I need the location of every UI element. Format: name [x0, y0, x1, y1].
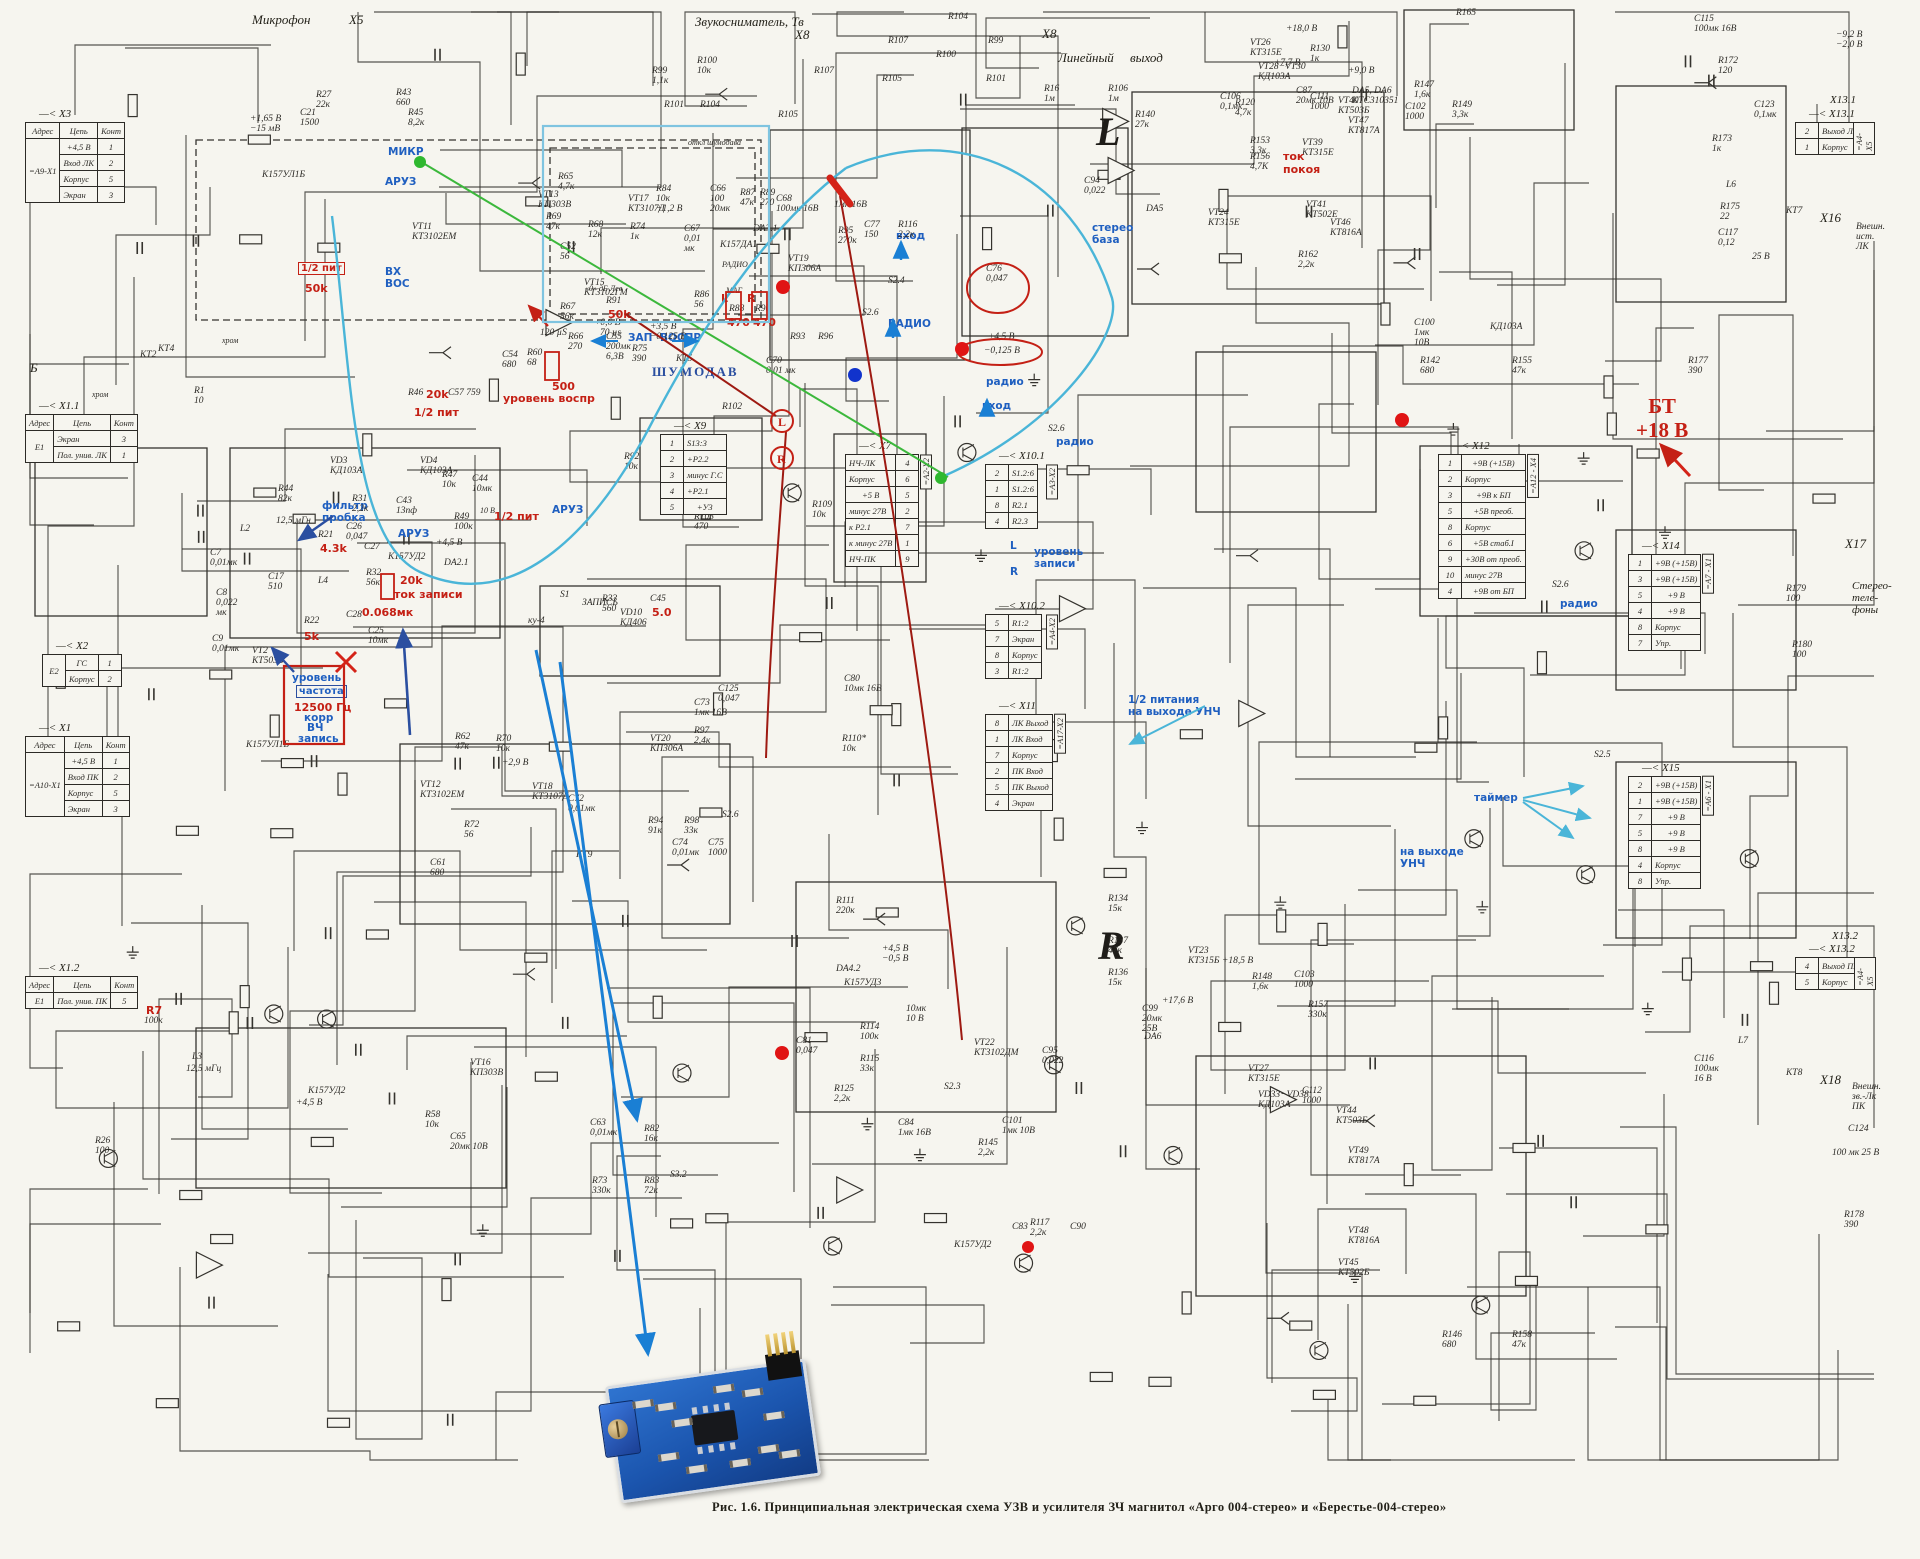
schematic-label: VT16 КП303В [470, 1058, 503, 1078]
schematic-label: +1,65 В −15 мВ [250, 114, 281, 134]
schematic-label: Х8 [1042, 26, 1056, 42]
schematic-label: R145 2,2к [978, 1138, 998, 1158]
schematic-label: К157УД2 [954, 1240, 991, 1250]
schematic-label: 100к [144, 1016, 163, 1026]
schematic-label: МИКР [388, 146, 424, 158]
schematic-label: R146 680 [1442, 1330, 1462, 1350]
schematic-label: R27 22к [316, 90, 331, 110]
schematic-label: выход [1130, 50, 1163, 66]
schematic-label: R117 2,2к [1030, 1218, 1049, 1238]
schematic-label: R94 91к [648, 816, 663, 836]
schematic-label: +9,0 В [1348, 66, 1374, 76]
trimmer-screw [607, 1418, 630, 1441]
schematic-label: 12,5 мГц [186, 1064, 221, 1074]
schematic-label: таймер [1474, 792, 1518, 804]
connector-table-x3: —< Х3АдресЦепьКонт=А9-Х1+4,5 В1Вход ЛК2К… [25, 108, 125, 203]
schematic-label: R69 47к [546, 212, 561, 232]
schematic-label: радио [986, 376, 1024, 388]
schematic-label: VT19 КП306А [788, 254, 821, 274]
schematic-label: С84 1мк 16В [898, 1118, 931, 1138]
connector-table-x12: —< Х121+9В (+15В)2Корпус3+9В к БП5+5В пр… [1438, 440, 1526, 599]
schematic-label: С27 [364, 542, 380, 552]
schematic-label: VT40 КТ503Б [1338, 96, 1369, 116]
schematic-label: R68 12к [588, 220, 603, 240]
schematic-label: R134 15к [1108, 894, 1128, 914]
schematic-label: С57 759 [448, 388, 480, 398]
schematic-label: КД103А [1490, 322, 1522, 332]
schematic-label: R102 [722, 402, 742, 412]
schematic-label: R88 [729, 304, 744, 314]
schematic-label: +4,5 В [436, 538, 462, 548]
schematic-label: С112 1000 [1302, 1086, 1322, 1106]
schematic-label: хром [222, 336, 238, 345]
schematic-label: 0.068мк [362, 606, 413, 619]
schematic-label: VT2 КТ503Б [252, 646, 283, 666]
schematic-label: DA5 [1146, 204, 1163, 214]
schematic-label: Б [30, 360, 38, 376]
schematic-label: R106 1м [1108, 84, 1128, 104]
connector-table-x2: —< Х2Е2ГС1Корпус2 [42, 640, 122, 687]
schematic-label: VT11 КТ3102ЕМ [412, 222, 456, 242]
schematic-label: R180 100 [1792, 640, 1812, 660]
schematic-label: С66 100 20мк [710, 184, 730, 214]
schematic-label: 50k [305, 282, 328, 295]
connector-table-x14: —< Х141+9В (+15В)3+9В (+15В)5+9 В4+9 В8К… [1628, 540, 1701, 651]
soic8-chip [691, 1410, 739, 1446]
schematic-label: С70 0,01 мк [766, 356, 796, 376]
schematic-label: VT28−VT30 КД103А [1258, 62, 1306, 82]
schematic-label: R110* 10к [842, 734, 866, 754]
schematic-label: R107 [888, 36, 908, 46]
schematic-label: РАДИО [888, 318, 931, 330]
schematic-label: 1мк 16В [834, 200, 867, 210]
schematic-label: Х16 [1820, 210, 1841, 226]
schematic-label: уровень воспр [503, 392, 595, 405]
schematic-label: S2.6 [862, 308, 879, 318]
schematic-label: VT22 КТ3102ДМ [974, 1038, 1019, 1058]
schematic-label: С72 0,01мк [568, 794, 595, 814]
schematic-label: вход [982, 400, 1011, 412]
schematic-label: С76 0,047 [986, 264, 1007, 284]
schematic-label: Х5 [349, 12, 363, 28]
schematic-label: К157УЛ1Б [246, 740, 289, 750]
schematic-label: S2.5 [1594, 750, 1611, 760]
schematic-label: R96 [818, 332, 833, 342]
schematic-label: S2.6 [1048, 424, 1065, 434]
schematic-label: R70 10к [496, 734, 511, 754]
schematic-label: DA3.1 [753, 224, 778, 234]
schematic-label: R104 [700, 100, 720, 110]
schematic-label: R162 2,2к [1298, 250, 1318, 270]
schematic-label: С9 0,01мк [212, 634, 239, 654]
connector-table-x11: —< Х118ЛК Выход1ЛК Вход7Корпус2ПК Вход5П… [985, 700, 1053, 811]
schematic-label: R87 47к [740, 188, 755, 208]
schematic-label: VT13 КП303В [538, 190, 571, 210]
schematic-label: R93 [790, 332, 805, 342]
schematic-label: С75 1000 [708, 838, 727, 858]
schematic-label: R130 1к [1310, 44, 1330, 64]
schematic-label: R33 560 [602, 594, 617, 614]
schematic-label: уровень [292, 672, 341, 684]
schematic-label: С77 150 [864, 220, 880, 240]
schematic-label: С123 0,1мк [1754, 100, 1776, 120]
schematic-label: ВХ ВОС [385, 266, 410, 290]
schematic-label: L7 [1738, 1036, 1748, 1046]
schematic-label: R107 [814, 66, 834, 76]
connector-table-x13-1: —< Х13.12Выход ЛК1Корпус=А4-Х5 [1795, 108, 1862, 155]
schematic-label: VT45 КТ502Б [1338, 1258, 1369, 1278]
schematic-label: R177 390 [1688, 356, 1708, 376]
schematic-label: VT24 КТ315Е [1208, 208, 1240, 228]
schematic-label: VT23 КТ315Б [1188, 946, 1219, 966]
schematic-label: К157УЛ1Б [262, 170, 305, 180]
schematic-label: +3,5 В −0,125 В [650, 322, 686, 342]
schematic-label: 10мк 10 В [906, 1004, 926, 1024]
schematic-label: АРУЗ [398, 528, 429, 540]
connector-table-x13-2: —< Х13.24Выход ПК5Корпус=А4-Х5 [1795, 943, 1863, 990]
schematic-label: БТ +18 В [1636, 394, 1688, 442]
schematic-label: Х8 [795, 27, 809, 43]
schematic-label: R83 72к [644, 1176, 659, 1196]
schematic-label: К157ДА1 [720, 240, 757, 250]
schematic-label: С55 200мк 6,3В [606, 332, 631, 362]
schematic-label: R105 [882, 74, 902, 84]
schematic-label: R148 1,6к [1252, 972, 1272, 992]
schematic-label: С8 0,022 мк [216, 588, 237, 618]
schematic-label: R179 100 [1786, 584, 1806, 604]
schematic-label: R [1010, 566, 1018, 578]
schematic-label: С43 13пф [396, 496, 417, 516]
schematic-label: АРУЗ [552, 504, 583, 516]
schematic-label: 120 µS [540, 328, 567, 338]
schematic-label: +4,5 В −0,5 В [882, 944, 908, 964]
schematic-label: «0» дБ Лев [585, 284, 622, 293]
schematic-label: R137 47к [1108, 936, 1128, 956]
schematic-label: VT44 КТ503Б [1336, 1106, 1367, 1126]
header-connector [765, 1350, 802, 1380]
schematic-label: R75 390 [632, 344, 647, 364]
schematic-label: Внешн. ист. ЛК [1856, 222, 1885, 252]
schematic-label: R26 100 [95, 1136, 110, 1156]
schematic-label: С94 0,022 [1084, 176, 1105, 196]
schematic-label: R90 [755, 304, 770, 314]
schematic-label: +4,5 В [296, 1098, 322, 1108]
schematic-label: стерео база [1092, 222, 1133, 246]
schematic-label: 470 [753, 316, 776, 329]
schematic-label: R103 470 [694, 512, 714, 532]
schematic-label: С81 0,047 [796, 1036, 817, 1056]
connector-table-x9: —< Х91S13:32+Р2.23минус Г.С4+Р2.15+У3 [660, 420, 727, 515]
schematic-label: R66 270 [568, 332, 583, 352]
schematic-label: 1/2 пит [414, 406, 459, 419]
schematic-label: К157УД2 [388, 552, 425, 562]
schematic-label: ЗАП [628, 332, 652, 344]
schematic-label: С100 1мк 10В [1414, 318, 1435, 348]
schematic-label: VT26 КТ315Е [1250, 38, 1282, 58]
schematic-label: R74 1к [630, 222, 645, 242]
schematic-label: 20k [400, 574, 423, 587]
schematic-label: С106 0,1мк [1220, 92, 1242, 112]
schematic-label: 25 В [1752, 252, 1770, 262]
schematic-label: L [1010, 540, 1017, 552]
schematic-label: S2.6 [722, 810, 739, 820]
schematic-label: на выходе УНЧ [1400, 846, 1464, 870]
schematic-label: С74 0,01мк [672, 838, 699, 858]
schematic-label: R104 [948, 12, 968, 22]
schematic-label: R82 16к [644, 1124, 659, 1144]
schematic-label: С61 680 [430, 858, 446, 878]
schematic-label: С115 100мк 16В [1694, 14, 1736, 34]
schematic-label: ток покоя [1283, 150, 1320, 176]
schematic-label: +17,6 В [1162, 996, 1193, 1006]
schematic-label: VT27 КТ315Е [1248, 1064, 1280, 1084]
schematic-label: R155 47к [1512, 356, 1532, 376]
schematic-label: Х18 [1820, 1072, 1841, 1088]
schematic-label: R142 680 [1420, 356, 1440, 376]
schematic-label: R175 22 [1720, 202, 1740, 222]
connector-table-x10-2: —< Х10.25R1:27Экран8Корпус3R1:2=А4-Х2 [985, 600, 1045, 679]
schematic-label: R65 4,7к [558, 172, 574, 192]
connector-table-x10-1: —< Х10.12S1.2:61S1.2:68R2.14R2.3=А3-Х2 [985, 450, 1045, 529]
schematic-label: ШУМОДАВ [652, 364, 739, 380]
schematic-label: R73 330к [592, 1176, 611, 1196]
schematic-label: VT46 КТ816А [1330, 218, 1362, 238]
schematic-label: С25 10мк [368, 626, 388, 646]
schematic-label: VT20 КП306А [650, 734, 683, 754]
schematic-label: VD3 КД103А [330, 456, 362, 476]
schematic-label: S1 [560, 590, 570, 600]
schematic-label: L6 [1726, 180, 1736, 190]
schematic-label: R111 220к [836, 896, 855, 916]
schematic-label: R84 10к +1,2 В [656, 184, 682, 214]
schematic-label: С80 10мк 16В [844, 674, 882, 694]
schematic-label: R140 27к [1135, 110, 1155, 130]
schematic-label: КТ4 [158, 344, 174, 354]
schematic-label: С102 1000 [1405, 102, 1426, 122]
schematic-label: С63 0,01мк [590, 1118, 617, 1138]
schematic-label: VT41 КТ502Е [1306, 200, 1338, 220]
schematic-label: КТ7 [1786, 206, 1802, 216]
schematic-label: С17 510 [268, 572, 284, 592]
schematic-label: С83 [1012, 1222, 1028, 1232]
schematic-label: R32 56к [366, 568, 381, 588]
schematic-label: R99 [988, 36, 1003, 46]
schematic-label: КТ5 [676, 354, 692, 364]
schematic-label: R114 100к [860, 1022, 879, 1042]
schematic-label: С65 20мк 10В [450, 1132, 488, 1152]
schematic-label: С90 [1070, 1222, 1086, 1232]
schematic-label: С103 1000 [1294, 970, 1315, 990]
schematic-label: +4,5 В [988, 332, 1014, 342]
schematic-label: Микрофон [252, 12, 310, 28]
schematic-label: КТ9 [576, 850, 592, 860]
schematic-label: С99 20мк 25В [1142, 1004, 1162, 1034]
schematic-label: С111 1000 [1310, 92, 1329, 112]
schematic-label: С26 0,047 [346, 522, 367, 542]
schematic-label: L [1096, 108, 1120, 155]
schematic-label: R178 390 [1844, 1210, 1864, 1230]
schematic-label: −0,125 В [984, 346, 1020, 356]
schematic-label: запись [298, 733, 339, 745]
schematic-label: R22 [304, 616, 319, 626]
connector-table-x1-1: —< Х1.1АдресЦепьКонтЕ1Экран3Пол. унив. Л… [25, 400, 138, 463]
schematic-label: С95 0,022 [1042, 1046, 1063, 1066]
schematic-label: уровень записи [1034, 546, 1083, 570]
schematic-label: VT49 КТ817А [1348, 1146, 1380, 1166]
schematic-label: 20k [426, 388, 449, 401]
schematic-label: Х17 [1845, 536, 1866, 552]
schematic-label: R149 3,3к [1452, 100, 1472, 120]
schematic-label: R100 10к [697, 56, 717, 76]
schematic-label: 1/2 пит [494, 510, 539, 523]
schematic-label: R16 1м [1044, 84, 1059, 104]
schematic-label: R89 270 [760, 188, 775, 208]
schematic-label: L3 [192, 1052, 202, 1062]
schematic-label: С54 680 [502, 350, 518, 370]
schematic-label: РАДИО [722, 260, 748, 269]
schematic-label: R101 [986, 74, 1006, 84]
schematic-label: 100 мк 25 В [1832, 1148, 1879, 1158]
schematic-label: S3.2 [670, 1170, 687, 1180]
schematic-label: R99 1,1к [652, 66, 668, 86]
schematic-label: R100 [936, 50, 956, 60]
connector-table-x7: —< Х7НЧ-ЛК4Корпус6+5 В5минус 27В2к Р2.17… [845, 440, 919, 567]
schematic-label: Стерео- теле- фоны [1852, 580, 1892, 616]
schematic-label: С124 [1848, 1124, 1869, 1134]
schematic-label: R91 [606, 296, 621, 306]
schematic-label: КТ8 [1786, 1068, 1802, 1078]
schematic-label: Х13.2 [1832, 930, 1858, 942]
schematic-label: 10 В [480, 506, 495, 515]
schematic-label: R67 56к [560, 302, 575, 322]
schematic-label: R98 33к [684, 816, 699, 836]
schematic-label: АРУЗ [385, 176, 416, 188]
schematic-label: R44 82к [278, 484, 293, 504]
schematic-label: Внешн. зв.-Лк ПК [1852, 1082, 1881, 1112]
schematic-label: С125 0,047 [718, 684, 739, 704]
schematic-label: МАГ [726, 286, 742, 295]
schematic-label: S2.3 [944, 1082, 961, 1092]
schematic-label: Х13.1 [1830, 94, 1856, 106]
schematic-label: откл шумодава [688, 138, 741, 147]
schematic-label: ку-4 [528, 616, 545, 626]
connector-table-x1-2: —< Х1.2АдресЦепьКонтЕ1Пол. унив. ПК5 [25, 962, 138, 1009]
schematic-label: R115 33к [860, 1054, 879, 1074]
schematic-label: радио [1056, 436, 1094, 448]
schematic-label: С45 [650, 594, 666, 604]
schematic-page: МикрофонХ5Звукосниматель, ТвХ8Линейныйвы… [0, 0, 1920, 1559]
schematic-label: R125 2,2к [834, 1084, 854, 1104]
label-layer: МикрофонХ5Звукосниматель, ТвХ8Линейныйвы… [0, 0, 1920, 1559]
schematic-label: R156 4,7К [1250, 152, 1270, 172]
schematic-label: R92 10к [624, 452, 639, 472]
schematic-label: R157 330к [1308, 1000, 1328, 1020]
schematic-label: R172 120 [1718, 56, 1738, 76]
schematic-label: VT18 КТ3107Д [532, 782, 569, 802]
schematic-label: 4.3k [320, 542, 347, 555]
schematic-label: Звукосниматель, Тв [695, 14, 804, 30]
figure-caption: Рис. 1.6. Принципиальная электрическая с… [712, 1500, 1446, 1515]
schematic-label: R95 270к [838, 226, 857, 246]
schematic-label: К157УД2 [308, 1086, 345, 1096]
schematic-label: R116 2,2к [898, 220, 917, 240]
schematic-label: R97 2,4к [694, 726, 710, 746]
schematic-label: 470 [727, 316, 750, 329]
schematic-label: С68 100мк 16В [776, 194, 818, 214]
schematic-label: С28 [346, 610, 362, 620]
schematic-label: 1/2 питания на выходе УНЧ [1128, 694, 1221, 718]
schematic-label: R72 56 [464, 820, 479, 840]
schematic-label: R49 100к [454, 512, 473, 532]
schematic-label: VT48 КТ816А [1348, 1226, 1380, 1246]
connector-table-x1: —< Х1АдресЦепьКонт=А10-Х1+4,5 В1Вход ПК2… [25, 722, 130, 817]
schematic-label: С67 0,01 мк [684, 224, 701, 254]
schematic-label: С101 1мк 10В [1002, 1116, 1035, 1136]
schematic-label: R105 [778, 110, 798, 120]
schematic-label: L2 [240, 524, 250, 534]
schematic-label: −9,2 В −2,0 В [1836, 30, 1862, 50]
schematic-label: R165 [1456, 8, 1476, 18]
schematic-label: хром [92, 390, 108, 399]
schematic-label: 1/2 пит [298, 262, 345, 275]
schematic-label: С7 0,01мк [210, 548, 237, 568]
schematic-label: R21 [318, 530, 333, 540]
schematic-label: VT12 КТ3102ЕМ [420, 780, 464, 800]
schematic-label: R [747, 292, 755, 305]
schematic-label: DA6 [1144, 1032, 1161, 1042]
connector-table-x15: —< Х152+9В (+15В)1+9В (+15В)7+9 В5+9 В8+… [1628, 762, 1701, 889]
schematic-label: VD10 КД406 [620, 608, 647, 628]
schematic-label: +18,0 В [1286, 24, 1317, 34]
schematic-label: Линейный [1058, 50, 1114, 66]
schematic-label: R60 68 [527, 348, 542, 368]
schematic-label: S2.4 [888, 276, 905, 286]
schematic-label: VT47 КТ817А [1348, 116, 1380, 136]
schematic-label: К157УД3 [844, 978, 881, 988]
schematic-label: R43 660 [396, 88, 411, 108]
schematic-label: С44 10мк [472, 474, 492, 494]
schematic-label: 12,5 мГн [276, 516, 311, 526]
schematic-label: R46 [408, 388, 423, 398]
schematic-label: R1 10 [194, 386, 205, 406]
schematic-label: R86 56 [694, 290, 709, 310]
schematic-label: L4 [318, 576, 328, 586]
schematic-label: R101 [664, 100, 684, 110]
schematic-label: R147 1,6к [1414, 80, 1434, 100]
schematic-label: радио [1560, 598, 1598, 610]
schematic-label: DA4.2 [836, 964, 861, 974]
schematic-label: R136 15к [1108, 968, 1128, 988]
schematic-label: ток записи [394, 588, 463, 601]
schematic-label: R31 2,2к [352, 494, 368, 514]
schematic-label: R45 8,2к [408, 108, 424, 128]
schematic-label: R58 10к [425, 1110, 440, 1130]
schematic-label: С116 100мк 16 В [1694, 1054, 1719, 1084]
schematic-label: 5k [304, 630, 319, 643]
schematic-label: R62 47к [455, 732, 470, 752]
schematic-label: С52 56 [560, 242, 576, 262]
schematic-label: 5.0 [652, 606, 672, 619]
schematic-label: +18,5 В [1222, 956, 1253, 966]
schematic-label: 50k [608, 308, 631, 321]
schematic-label: DA2.1 [444, 558, 469, 568]
schematic-label: R173 1к [1712, 134, 1732, 154]
schematic-label: С117 0,12 [1718, 228, 1738, 248]
schematic-label: S2.6 [1552, 580, 1569, 590]
schematic-label: КТ2 [140, 350, 156, 360]
schematic-label: R47 10к [442, 470, 457, 490]
schematic-label: R158 47к [1512, 1330, 1532, 1350]
